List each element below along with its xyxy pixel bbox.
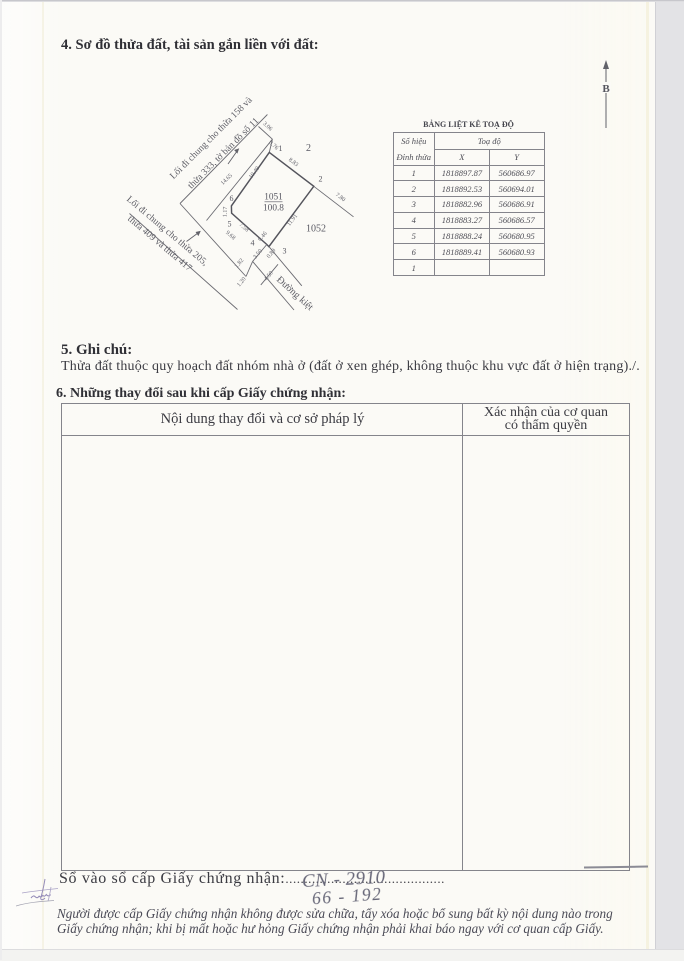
svg-text:10.40: 10.40 [248,166,261,180]
svg-text:0.89: 0.89 [266,248,277,260]
svg-text:0.46: 0.46 [257,231,268,243]
svg-text:6: 6 [230,194,234,203]
svg-text:B: B [602,83,610,95]
svg-text:2: 2 [306,143,311,154]
svg-text:100.8: 100.8 [263,204,284,214]
svg-text:5: 5 [228,220,232,229]
svg-text:1.82: 1.82 [234,258,245,270]
svg-text:9.68: 9.68 [224,230,236,241]
svg-text:7.58: 7.58 [238,222,250,233]
svg-text:1.17: 1.17 [223,207,229,218]
svg-text:2: 2 [319,175,323,184]
svg-text:1: 1 [279,144,283,153]
svg-text:1052: 1052 [306,224,326,235]
svg-text:11.91: 11.91 [286,213,299,227]
svg-text:1051: 1051 [264,193,283,203]
svg-text:0.76: 0.76 [267,140,279,151]
svg-text:4: 4 [251,239,255,248]
svg-text:7.80: 7.80 [334,192,346,203]
svg-text:3: 3 [283,247,287,256]
svg-text:1.20: 1.20 [236,276,247,288]
svg-text:4.50: 4.50 [263,270,274,282]
svg-text:14.65: 14.65 [220,173,234,187]
